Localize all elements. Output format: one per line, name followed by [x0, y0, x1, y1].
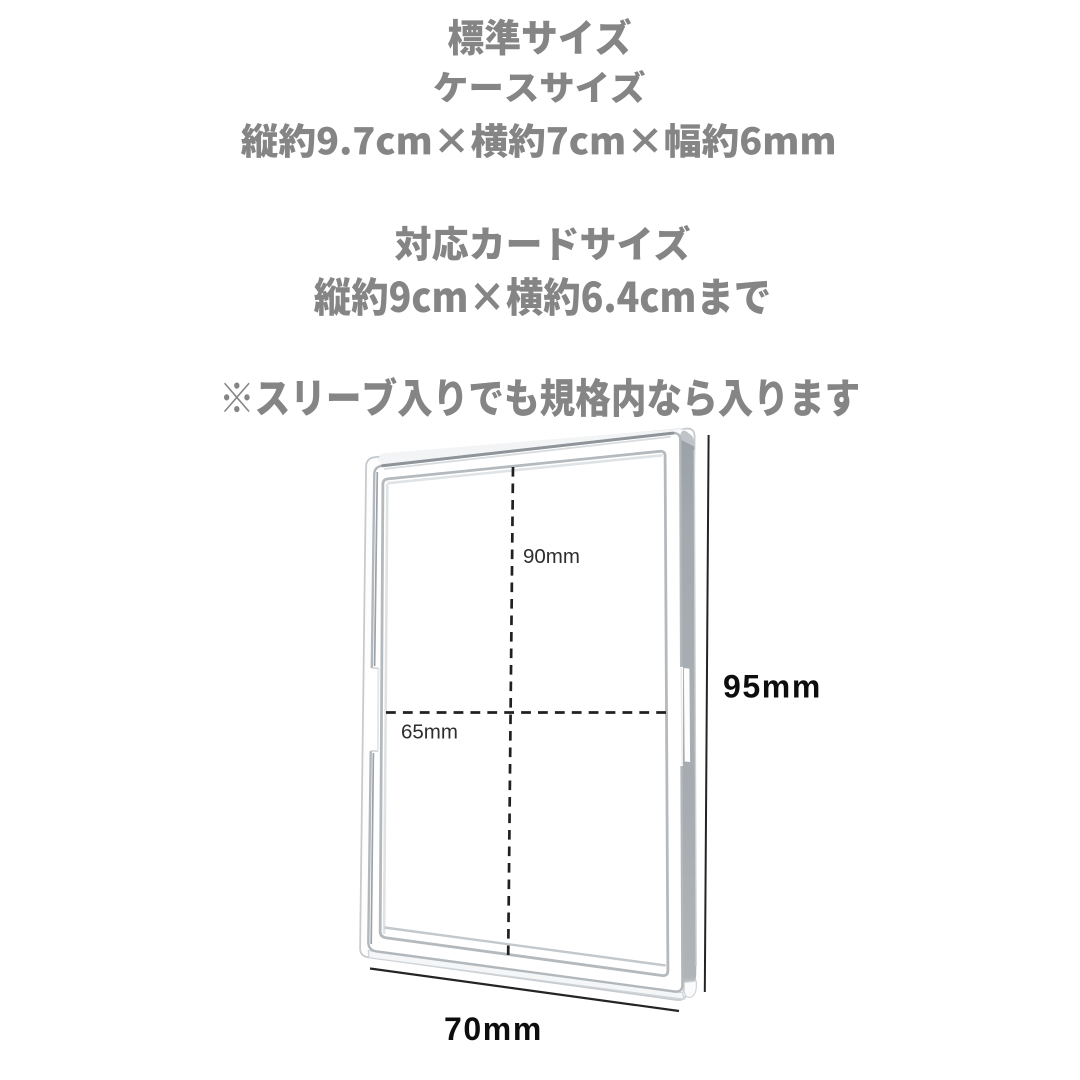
svg-text:65mm: 65mm — [401, 721, 458, 744]
svg-text:90mm: 90mm — [523, 545, 580, 568]
svg-text:95mm: 95mm — [723, 669, 822, 705]
svg-text:70mm: 70mm — [444, 1011, 543, 1047]
